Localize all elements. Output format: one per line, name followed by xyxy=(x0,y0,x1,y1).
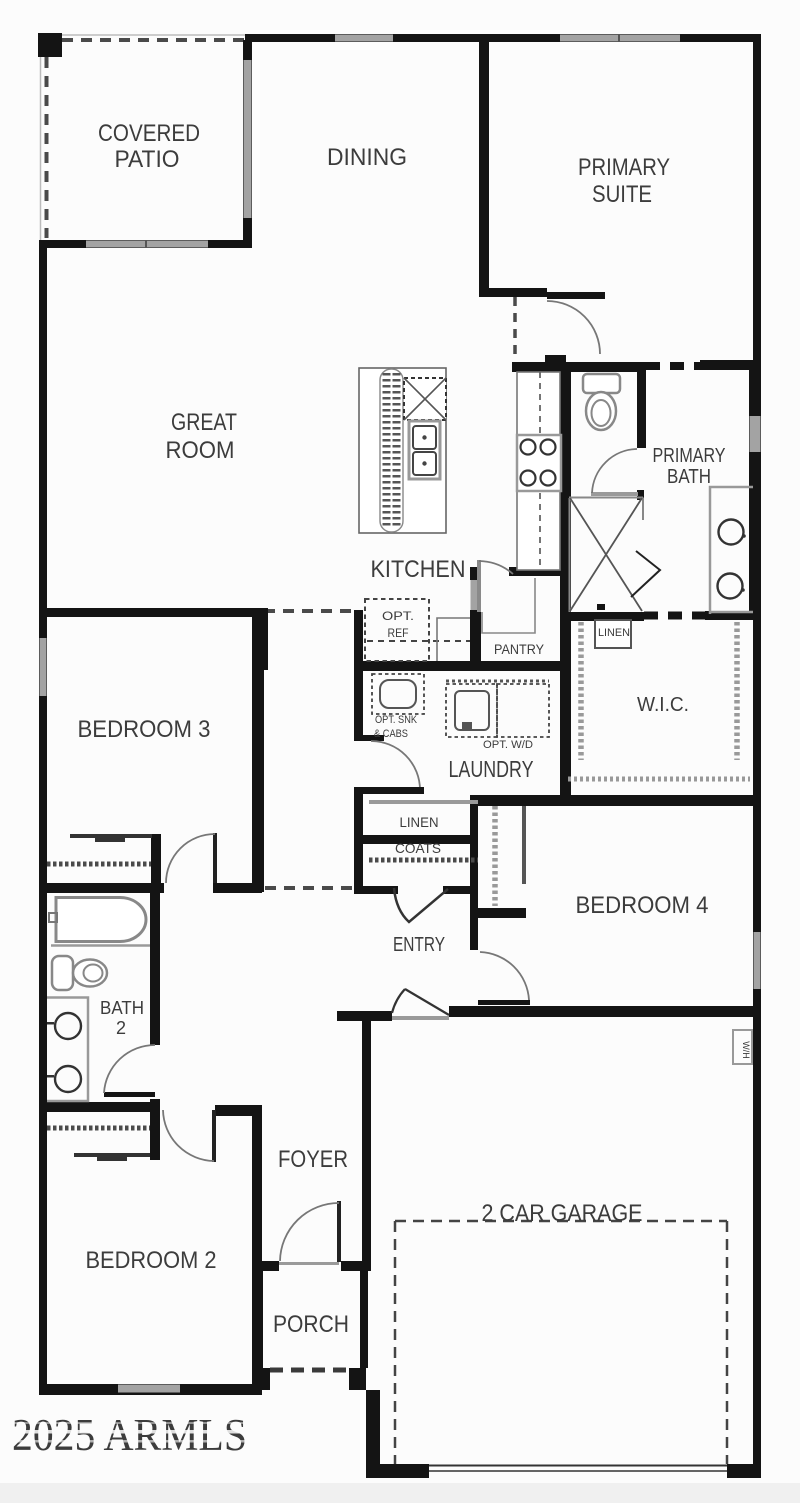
svg-text:OPT. SNK: OPT. SNK xyxy=(375,714,418,726)
svg-text:LINEN: LINEN xyxy=(598,627,630,639)
svg-text:COVERED: COVERED xyxy=(98,120,200,147)
svg-text:SUITE: SUITE xyxy=(592,181,652,208)
svg-text:BEDROOM 3: BEDROOM 3 xyxy=(78,716,211,743)
svg-text:2025 ARMLS: 2025 ARMLS xyxy=(12,1410,247,1460)
svg-text:DINING: DINING xyxy=(327,144,407,171)
svg-text:ROOM: ROOM xyxy=(166,437,235,464)
svg-text:OPT. W/D: OPT. W/D xyxy=(483,739,533,751)
svg-text:LAUNDRY: LAUNDRY xyxy=(449,756,534,782)
svg-text:PATIO: PATIO xyxy=(115,146,180,173)
svg-text:GREAT: GREAT xyxy=(171,409,237,436)
svg-text:REF: REF xyxy=(388,628,409,640)
svg-text:2: 2 xyxy=(116,1018,126,1038)
svg-text:& CABS: & CABS xyxy=(374,728,408,740)
svg-text:PORCH: PORCH xyxy=(273,1311,349,1338)
svg-text:PRIMARY: PRIMARY xyxy=(653,445,726,467)
svg-text:BEDROOM 4: BEDROOM 4 xyxy=(576,892,709,919)
svg-text:OPT.: OPT. xyxy=(382,611,414,623)
svg-text:PRIMARY: PRIMARY xyxy=(578,154,670,181)
svg-text:ENTRY: ENTRY xyxy=(393,934,445,956)
svg-text:PANTRY: PANTRY xyxy=(494,642,544,657)
svg-text:BEDROOM 2: BEDROOM 2 xyxy=(86,1247,217,1274)
svg-text:BATH: BATH xyxy=(100,998,144,1018)
svg-text:W/H: W/H xyxy=(741,1041,751,1059)
svg-text:W.I.C.: W.I.C. xyxy=(637,694,689,716)
svg-text:BATH: BATH xyxy=(667,466,711,488)
svg-text:LINEN: LINEN xyxy=(400,814,439,830)
svg-text:FOYER: FOYER xyxy=(278,1146,348,1173)
svg-text:KITCHEN: KITCHEN xyxy=(371,556,466,583)
svg-text:COATS: COATS xyxy=(395,840,441,856)
svg-text:2 CAR GARAGE: 2 CAR GARAGE xyxy=(482,1200,643,1227)
